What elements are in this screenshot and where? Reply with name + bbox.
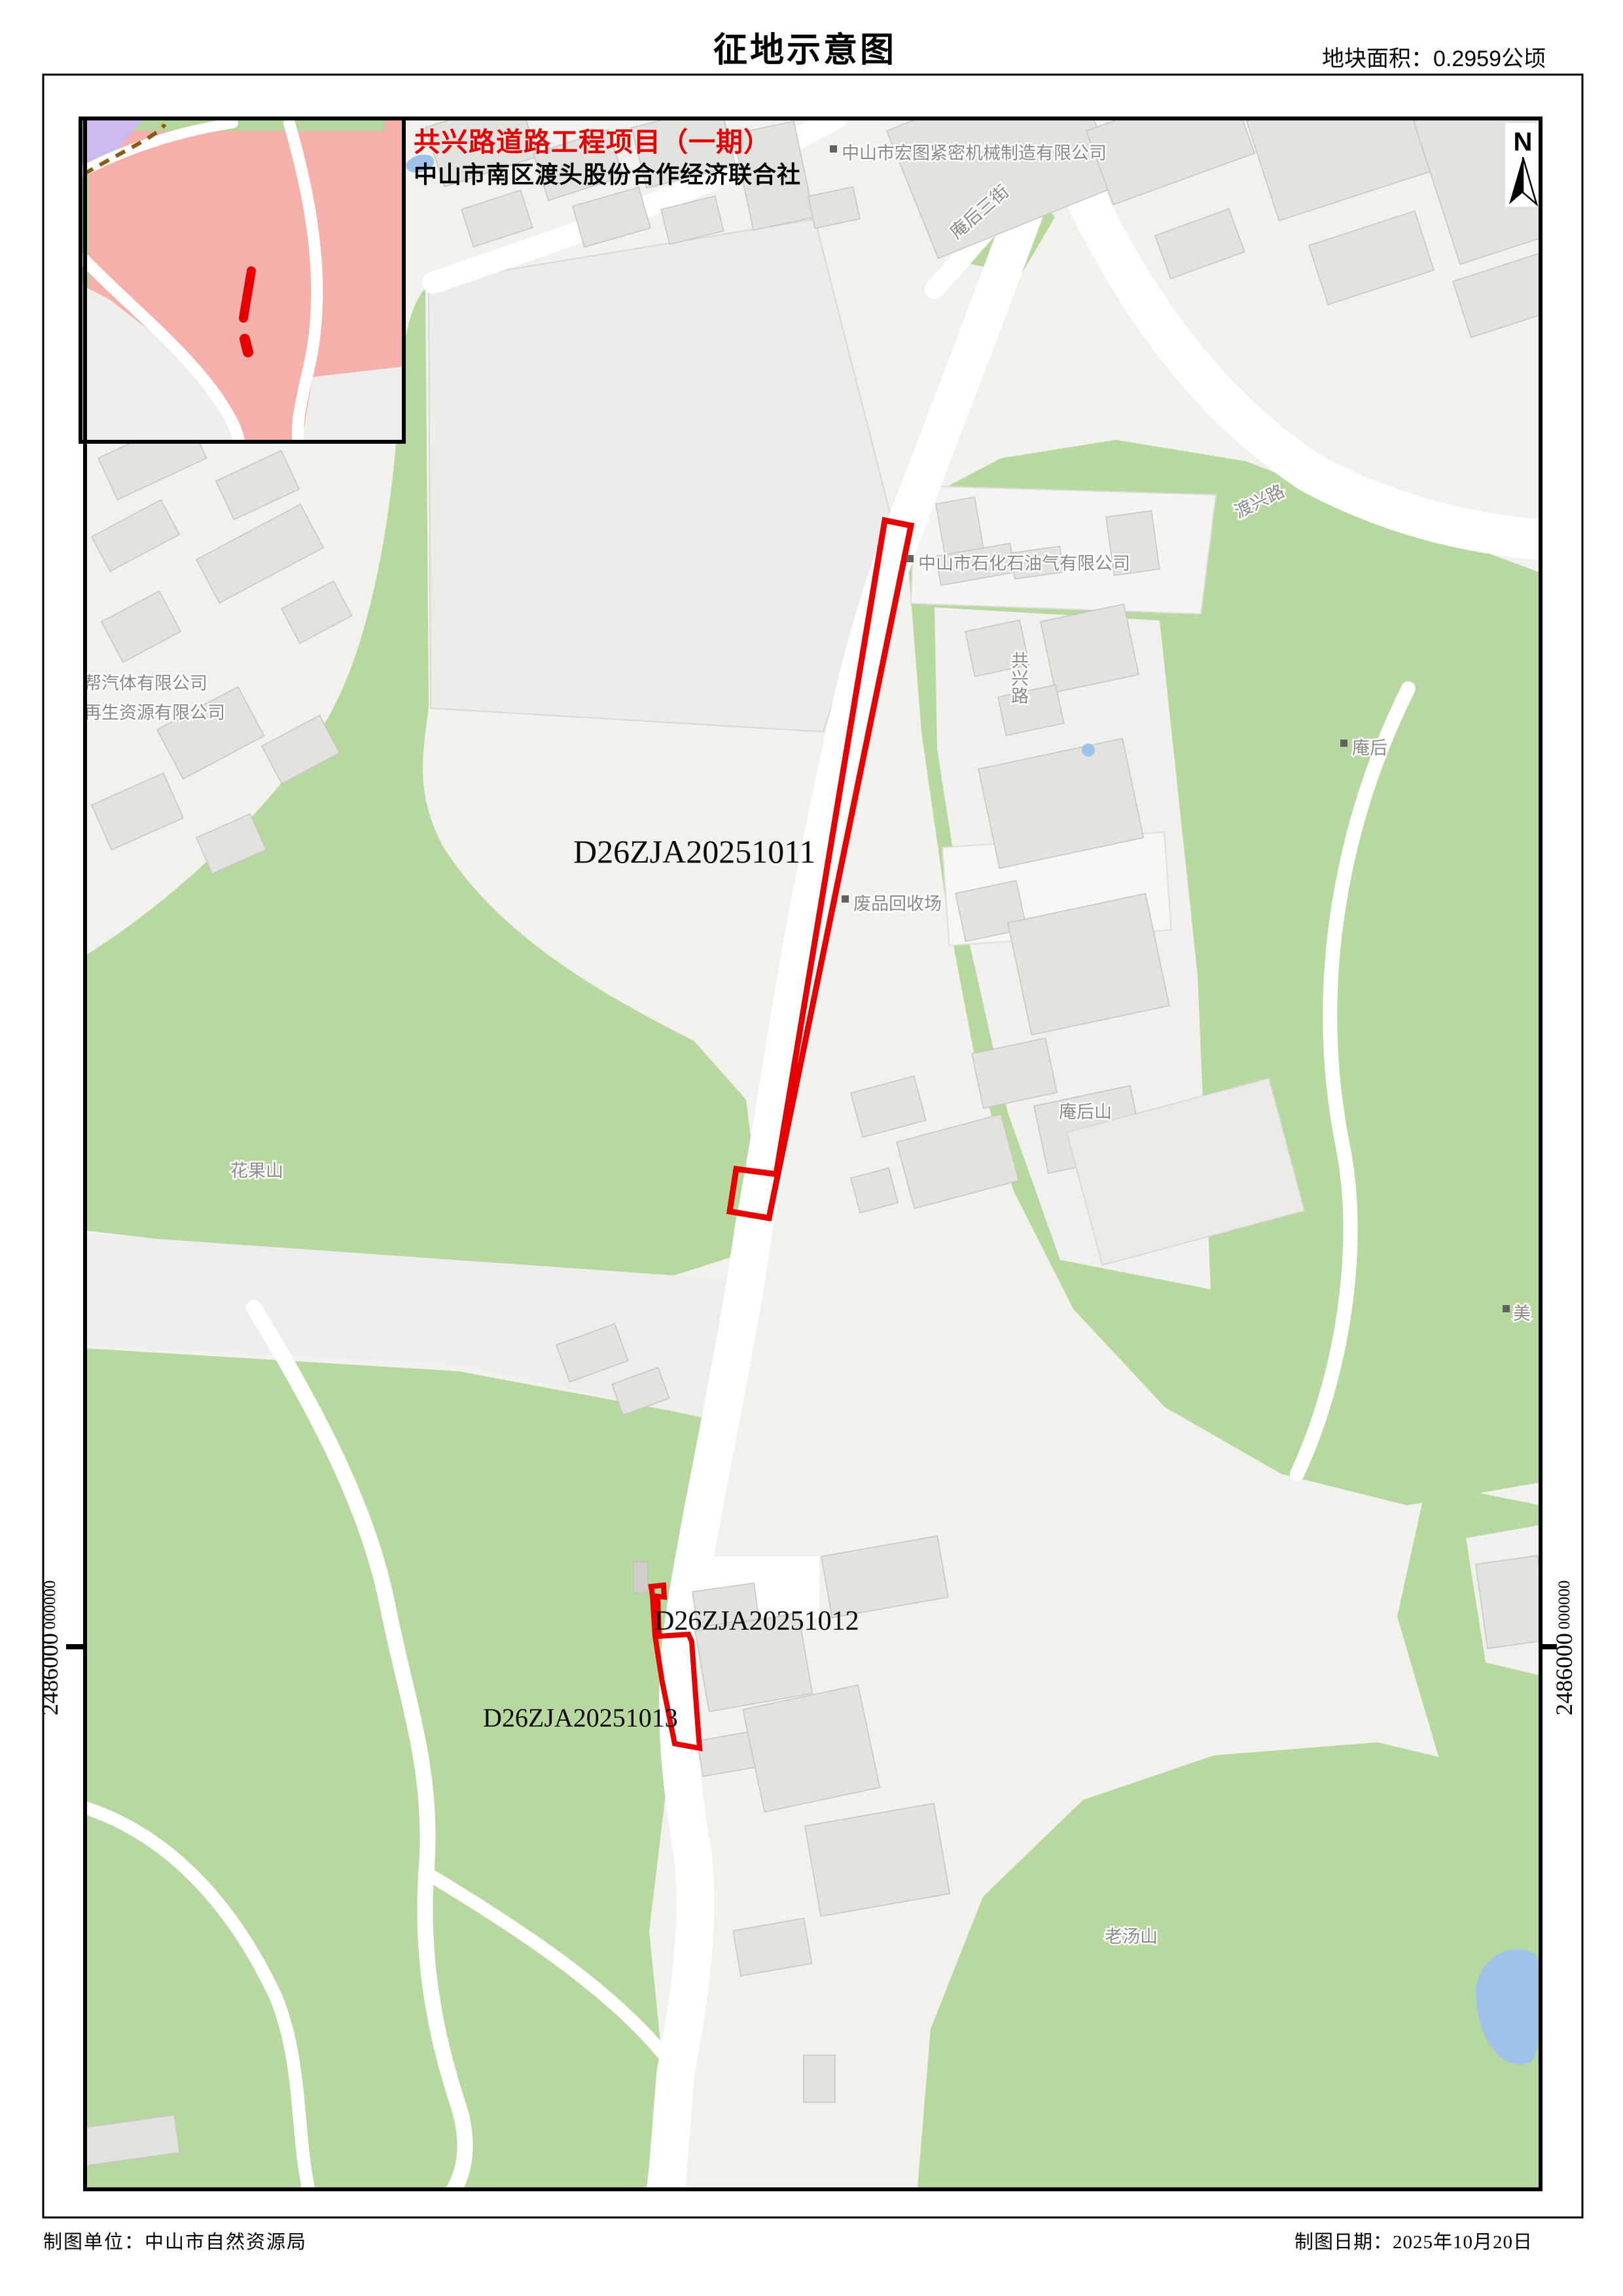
grid-northing-right: 2486000 (1551, 1633, 1577, 1715)
building (1476, 1556, 1549, 1649)
map-canvas: 中山市宏图紧密机械制造有限公司 庵后三街 渡兴路 中山市石化石油气有限公司 庵后… (0, 0, 1623, 2296)
hill-label: 花果山 (230, 1161, 283, 1181)
parcel-id-label: D26ZJA20251013 (483, 1703, 678, 1732)
inset-project-mark (245, 339, 248, 352)
poi-label: 再生资源有限公司 (84, 703, 225, 723)
poi-marker-icon (842, 895, 849, 903)
poi-label: 中山市石化石油气有限公司 (918, 554, 1130, 573)
factory-yard (429, 219, 891, 732)
inset-map (80, 118, 404, 444)
north-arrow: N (1505, 123, 1541, 207)
grid-northing-left: 2486000 (37, 1633, 63, 1715)
building (804, 2055, 835, 2102)
footer-producer: 制图单位：中山市自然资源局 (43, 2227, 307, 2254)
poi-label: 庵后 (1352, 738, 1387, 758)
map-sheet: 征地示意图 地块面积：0.2959公顷 (0, 0, 1623, 2296)
poi-label: 美 (1513, 1304, 1531, 1323)
footer-date: 制图日期：2025年10月20日 (1294, 2227, 1533, 2254)
poi-label: 中山市宏图紧密机械制造有限公司 (842, 143, 1107, 163)
building (633, 1562, 648, 1593)
road-label: 共兴路 (1008, 651, 1028, 704)
parcel-id-label: D26ZJA20251012 (654, 1606, 859, 1636)
north-label: N (1514, 128, 1533, 156)
poi-marker-icon (1340, 740, 1347, 747)
parcel-id-label: D26ZJA20251011 (573, 833, 815, 870)
inset-gray (301, 367, 403, 444)
hill-label: 庵后山 (1059, 1102, 1112, 1122)
poi-marker-icon (1503, 1305, 1510, 1312)
poi-marker-icon (906, 555, 914, 562)
pond (1082, 744, 1095, 757)
vegetation-area (85, 1348, 704, 2187)
hill-label: 老汤山 (1105, 1927, 1158, 1946)
project-title: 共兴路道路工程项目（一期） (414, 126, 801, 159)
legend: 共兴路道路工程项目（一期） 中山市南区渡头股份合作经济联合社 (414, 126, 801, 191)
grid-tick (66, 1644, 84, 1649)
poi-marker-icon (830, 145, 837, 152)
poi-label: 废品回收场 (853, 894, 942, 914)
project-organization: 中山市南区渡头股份合作经济联合社 (414, 159, 801, 191)
grid-ghost-right: 000000 (1556, 1581, 1573, 1630)
poi-label: 帮汽体有限公司 (84, 673, 207, 693)
